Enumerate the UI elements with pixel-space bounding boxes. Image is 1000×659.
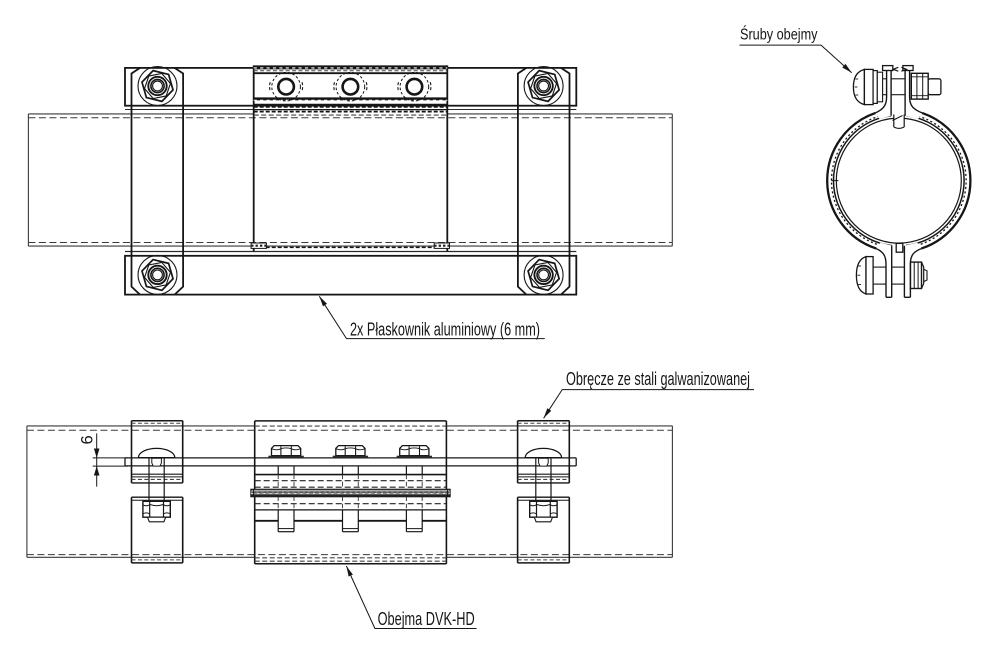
svg-text:2x Płaskownik aluminiowy (6 mm: 2x Płaskownik aluminiowy (6 mm) [350,319,540,340]
svg-text:6: 6 [78,435,96,444]
svg-text:Śruby obejmy: Śruby obejmy [740,26,818,44]
svg-text:Obręcze ze stali galwanizowane: Obręcze ze stali galwanizowanej [566,369,750,389]
svg-text:Obejma DVK-HD: Obejma DVK-HD [378,608,475,629]
